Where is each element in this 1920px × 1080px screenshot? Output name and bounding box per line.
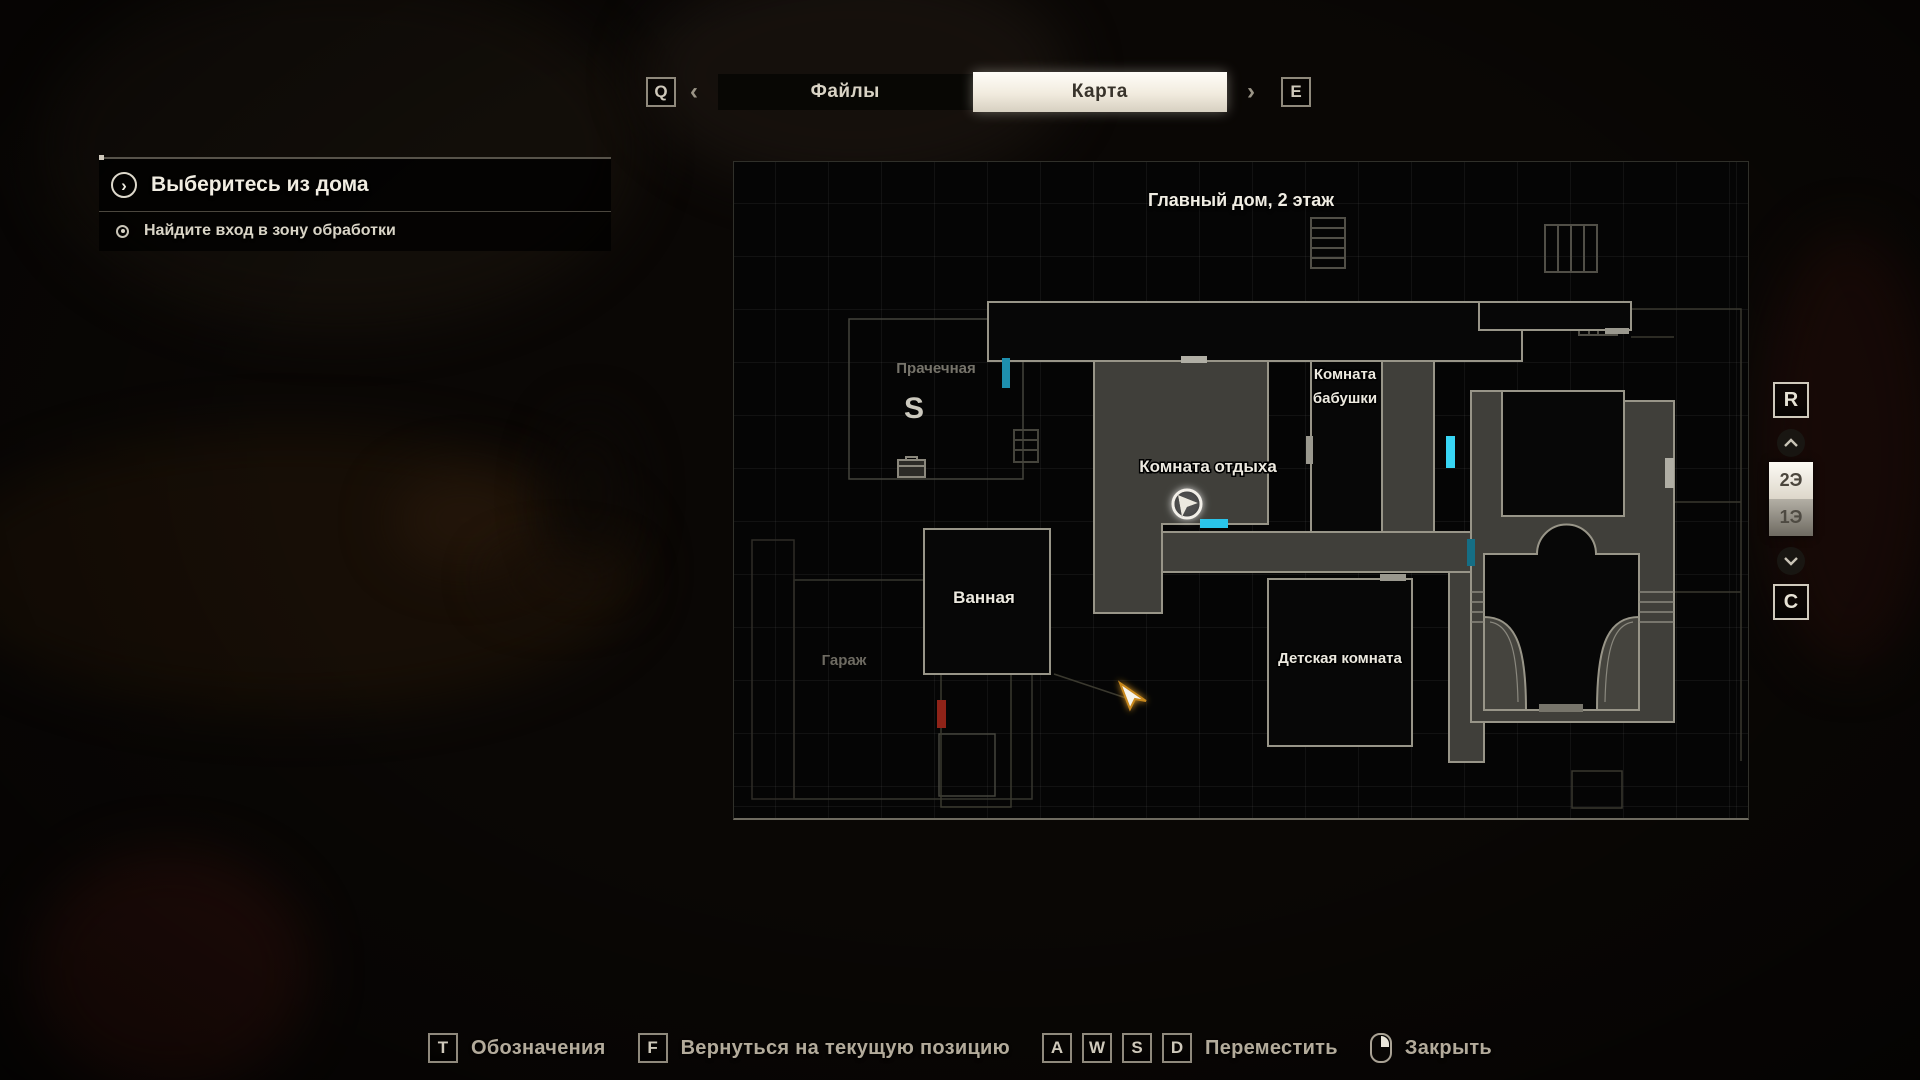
stairs-icon-north-left bbox=[1311, 218, 1345, 268]
stairs-icon-north-right bbox=[1545, 225, 1597, 272]
hint-move-label: Переместить bbox=[1205, 1037, 1338, 1060]
objective-secondary: Найдите вход в зону обработки bbox=[99, 212, 611, 251]
door-marker-cyan-hall-west bbox=[1446, 436, 1455, 468]
tab-bar: Файлы Карта bbox=[718, 74, 1227, 110]
move-keys: A W S D bbox=[1042, 1033, 1192, 1063]
laundry-icons: S bbox=[898, 392, 925, 477]
hint-legend: T Обозначения bbox=[428, 1033, 606, 1063]
floor-down-button[interactable] bbox=[1777, 547, 1805, 575]
tab-prev-arrow[interactable]: ‹ bbox=[690, 78, 698, 106]
label-laundry: Прачечная bbox=[896, 360, 975, 377]
hallway bbox=[1162, 532, 1484, 572]
objective-arrow-icon: › bbox=[111, 172, 137, 198]
key-hint-q[interactable]: Q bbox=[646, 77, 676, 107]
hint-recenter: F Вернуться на текущую позицию bbox=[638, 1033, 1010, 1063]
key-hint-s[interactable]: S bbox=[1122, 1033, 1152, 1063]
key-hint-r[interactable]: R bbox=[1773, 382, 1809, 418]
hall-north-room bbox=[1502, 391, 1624, 516]
save-point-icon: S bbox=[904, 392, 924, 425]
door-marker-cyan-hallway bbox=[1200, 519, 1228, 528]
floor-item-2[interactable]: 2Э bbox=[1769, 462, 1813, 499]
garage-inner-outline bbox=[939, 734, 995, 796]
grandma-room bbox=[1311, 361, 1382, 535]
chevron-down-icon bbox=[1783, 556, 1799, 566]
label-grandma-2: бабушки bbox=[1313, 390, 1377, 407]
corridor-below-bath-outline bbox=[941, 674, 1011, 807]
door-marker-gray-hall-south bbox=[1539, 704, 1583, 712]
south-stub-outline bbox=[1572, 771, 1622, 808]
objective-dot-icon bbox=[116, 225, 129, 238]
tab-next-arrow[interactable]: › bbox=[1247, 78, 1255, 106]
label-kids: Детская комната bbox=[1278, 650, 1402, 667]
corridor-main bbox=[988, 302, 1522, 361]
door-marker-gray-corridor bbox=[1605, 328, 1629, 334]
door-marker-gray-hall-east bbox=[1665, 458, 1674, 488]
hint-move: A W S D Переместить bbox=[1042, 1033, 1338, 1063]
map-canvas[interactable]: S Прачечная Комната отдыха Комната бабуш… bbox=[734, 162, 1750, 821]
floor-item-1[interactable]: 1Э bbox=[1769, 499, 1813, 536]
objective-main-text: Выберитесь из дома bbox=[151, 173, 369, 197]
floor-selector: 2Э 1Э bbox=[1769, 462, 1813, 536]
objective-main: › Выберитесь из дома bbox=[99, 159, 611, 211]
corridor-east bbox=[1479, 302, 1631, 330]
door-marker-teal-laundry bbox=[1002, 358, 1010, 388]
player-marker bbox=[1173, 490, 1201, 518]
key-hint-w[interactable]: W bbox=[1082, 1033, 1112, 1063]
door-marker-gray-recreation bbox=[1181, 356, 1207, 363]
footer-hints: T Обозначения F Вернуться на текущую поз… bbox=[0, 1033, 1920, 1063]
key-hint-t[interactable]: T bbox=[428, 1033, 458, 1063]
objectives-panel: › Выберитесь из дома Найдите вход в зону… bbox=[99, 157, 611, 251]
hint-close: Закрыть bbox=[1370, 1033, 1492, 1063]
objectives-topline bbox=[99, 157, 611, 159]
hint-legend-label: Обозначения bbox=[471, 1037, 606, 1060]
key-hint-c[interactable]: C bbox=[1773, 584, 1809, 620]
tab-files[interactable]: Файлы bbox=[718, 74, 973, 110]
key-hint-a[interactable]: A bbox=[1042, 1033, 1072, 1063]
chevron-up-icon bbox=[1783, 438, 1799, 448]
diagonal-wall bbox=[1054, 674, 1129, 699]
map-cursor bbox=[1120, 683, 1146, 709]
recreation-room bbox=[1094, 361, 1268, 613]
hint-recenter-label: Вернуться на текущую позицию bbox=[681, 1037, 1010, 1060]
door-marker-red bbox=[937, 700, 946, 728]
game-screen: Q ‹ Файлы Карта › E › Выберитесь из дома… bbox=[0, 0, 1920, 1080]
door-marker-gray-grandma bbox=[1306, 436, 1313, 464]
hint-close-label: Закрыть bbox=[1405, 1037, 1492, 1060]
label-bathroom: Ванная bbox=[953, 588, 1015, 607]
door-marker-teal-dim bbox=[1467, 539, 1475, 566]
stairs-icon-laundry-side bbox=[1014, 430, 1038, 462]
map-panel[interactable]: Главный дом, 2 этаж bbox=[733, 161, 1749, 820]
key-hint-f[interactable]: F bbox=[638, 1033, 668, 1063]
label-grandma-1: Комната bbox=[1314, 366, 1377, 383]
floor-up-button[interactable] bbox=[1777, 429, 1805, 457]
objective-secondary-text: Найдите вход в зону обработки bbox=[144, 222, 396, 240]
item-box-icon bbox=[898, 457, 925, 477]
label-garage: Гараж bbox=[822, 652, 867, 669]
key-hint-d[interactable]: D bbox=[1162, 1033, 1192, 1063]
mouse-right-button-icon[interactable] bbox=[1370, 1033, 1392, 1063]
door-marker-gray-kids bbox=[1380, 574, 1406, 581]
left-wing-outline bbox=[752, 540, 794, 799]
label-recreation: Комната отдыха bbox=[1139, 457, 1277, 476]
key-hint-e[interactable]: E bbox=[1281, 77, 1311, 107]
tab-map[interactable]: Карта bbox=[973, 72, 1228, 112]
